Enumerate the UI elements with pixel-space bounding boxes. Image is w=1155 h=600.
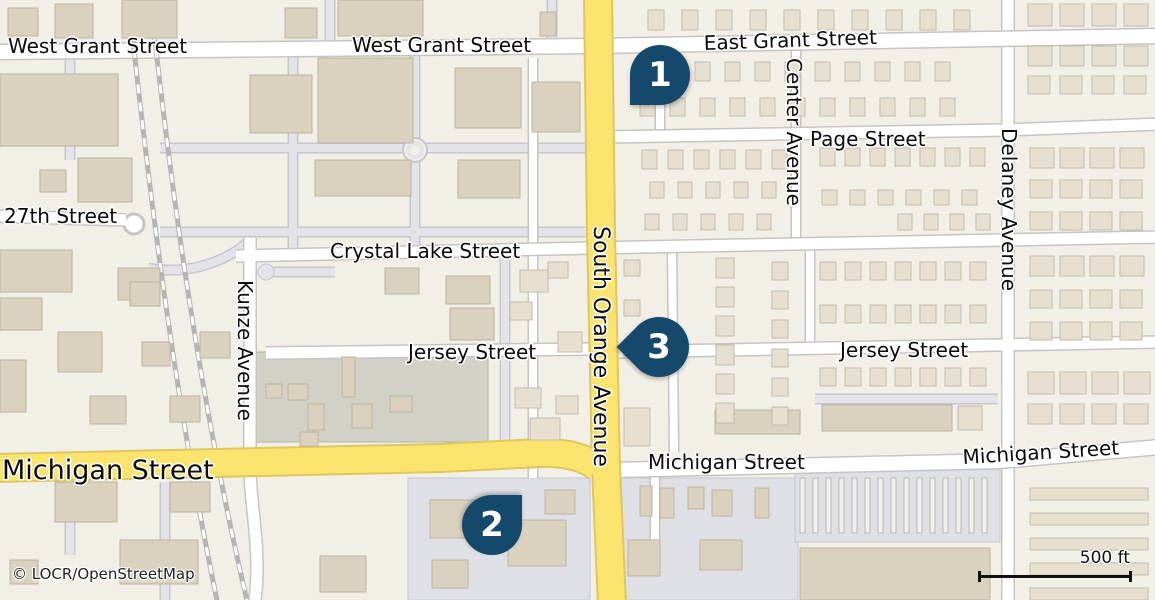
- map-marker-2[interactable]: 2: [462, 495, 522, 555]
- building: [1090, 322, 1112, 340]
- map-viewport[interactable]: West Grant Street West Grant Street East…: [0, 0, 1155, 600]
- street-label-delaney-avenue: Delaney Avenue: [997, 128, 1021, 291]
- building: [688, 487, 704, 509]
- building: [772, 349, 788, 367]
- building: [1092, 4, 1116, 26]
- building: [845, 305, 861, 323]
- building: [668, 150, 683, 169]
- building: [920, 368, 936, 386]
- street-label-west-grant-left: West Grant Street: [8, 34, 187, 58]
- map-graphics: West Grant Street West Grant Street East…: [0, 0, 1155, 600]
- building: [450, 308, 494, 340]
- building: [1092, 76, 1114, 94]
- building: [1060, 290, 1082, 308]
- building: [850, 98, 865, 116]
- street-label-jersey-west: Jersey Street: [406, 340, 536, 364]
- building: [920, 10, 936, 30]
- building: [895, 305, 911, 323]
- street-label-michigan-west: Michigan Street: [2, 455, 214, 486]
- map-marker-3[interactable]: 3: [629, 317, 689, 377]
- building: [1030, 290, 1052, 308]
- building: [820, 368, 836, 386]
- building: [1060, 404, 1084, 424]
- building: [760, 98, 775, 116]
- building: [970, 262, 986, 280]
- building: [318, 58, 413, 143]
- building: [678, 182, 692, 198]
- building: [1092, 372, 1118, 394]
- building: [820, 98, 835, 116]
- building: [945, 148, 960, 166]
- building: [545, 490, 575, 514]
- building: [1090, 290, 1112, 308]
- building: [970, 148, 985, 166]
- building: [530, 418, 560, 440]
- building: [716, 258, 734, 278]
- building: [1124, 76, 1146, 94]
- building: [895, 262, 911, 280]
- building: [1090, 256, 1114, 276]
- building: [757, 214, 771, 230]
- building: [1030, 513, 1148, 525]
- building: [820, 262, 836, 280]
- scale-bar-label: 500 ft: [978, 548, 1132, 568]
- building: [950, 214, 964, 230]
- building: [845, 262, 861, 280]
- building: [1090, 148, 1114, 168]
- building: [1092, 46, 1116, 66]
- building: [762, 182, 776, 198]
- building: [510, 302, 532, 320]
- building: [870, 262, 886, 280]
- building: [642, 150, 657, 169]
- building: [1060, 322, 1082, 340]
- building: [772, 407, 788, 425]
- building: [716, 10, 732, 30]
- building: [1028, 4, 1052, 26]
- building: [870, 368, 886, 386]
- building: [1120, 212, 1142, 230]
- storage-strip: [865, 478, 870, 533]
- building: [308, 404, 324, 430]
- building: [940, 98, 955, 116]
- building: [0, 360, 26, 412]
- building: [716, 316, 734, 336]
- building: [682, 10, 698, 30]
- building: [1120, 290, 1142, 308]
- building: [716, 374, 734, 394]
- storage-strip: [943, 478, 948, 533]
- building: [1030, 212, 1052, 230]
- building: [520, 270, 548, 292]
- building: [288, 384, 308, 400]
- building: [1120, 180, 1142, 198]
- building: [895, 368, 911, 386]
- building: [446, 276, 490, 304]
- building: [673, 214, 687, 230]
- building: [772, 291, 788, 309]
- building: [976, 214, 990, 230]
- cul-de-sac: [258, 264, 274, 280]
- building: [0, 298, 42, 330]
- building: [650, 182, 664, 198]
- building: [945, 305, 961, 323]
- building: [905, 62, 920, 81]
- building: [1060, 212, 1082, 230]
- building: [300, 432, 318, 446]
- building: [730, 98, 745, 116]
- building: [1060, 76, 1082, 94]
- building: [886, 10, 902, 30]
- building: [1030, 488, 1148, 500]
- building: [822, 405, 952, 431]
- street-label-michigan-center: Michigan Street: [648, 450, 805, 474]
- building: [1120, 322, 1142, 340]
- building: [880, 98, 895, 116]
- building: [870, 305, 886, 323]
- building: [78, 158, 132, 202]
- street-label-west-grant-center: West Grant Street: [352, 33, 531, 57]
- storage-strip: [813, 478, 818, 533]
- building: [342, 357, 355, 397]
- building: [1030, 588, 1148, 600]
- building: [556, 396, 578, 414]
- marker-number: 2: [462, 495, 522, 555]
- building: [755, 62, 770, 81]
- building: [920, 262, 936, 280]
- building: [660, 488, 674, 518]
- building: [1028, 46, 1052, 66]
- building: [695, 62, 710, 81]
- building: [90, 396, 126, 424]
- building: [716, 403, 734, 423]
- building: [729, 214, 743, 230]
- building: [878, 190, 893, 205]
- scale-bar: 500 ft: [978, 548, 1132, 582]
- map-marker-1[interactable]: 1: [630, 45, 690, 105]
- building: [390, 396, 412, 412]
- building: [924, 214, 938, 230]
- building: [712, 490, 732, 516]
- building: [822, 190, 837, 205]
- marker-number: 3: [629, 317, 689, 377]
- building: [850, 190, 865, 205]
- building: [746, 150, 761, 169]
- building: [1030, 322, 1052, 340]
- building: [701, 214, 715, 230]
- building: [352, 404, 372, 428]
- building: [845, 62, 860, 81]
- street-label-jersey-east: Jersey Street: [838, 338, 968, 362]
- building: [40, 170, 66, 192]
- storage-strip: [956, 478, 961, 533]
- building: [1124, 404, 1148, 424]
- building: [970, 368, 986, 386]
- building: [1030, 180, 1052, 198]
- building: [815, 62, 830, 81]
- building: [645, 214, 659, 230]
- building: [945, 368, 961, 386]
- building: [55, 482, 117, 522]
- building: [716, 345, 734, 365]
- building: [55, 4, 93, 38]
- building: [170, 482, 210, 512]
- building: [200, 332, 230, 358]
- building: [540, 12, 556, 36]
- building: [1090, 212, 1112, 230]
- building: [1120, 148, 1144, 168]
- building: [716, 287, 734, 307]
- building: [706, 182, 720, 198]
- building: [1028, 404, 1052, 424]
- building: [845, 368, 861, 386]
- storage-strip: [904, 478, 909, 533]
- building: [1120, 256, 1144, 276]
- building: [1060, 4, 1084, 26]
- building: [0, 250, 72, 292]
- cul-de-sac: [124, 214, 144, 234]
- storage-strip: [930, 478, 935, 533]
- building: [1060, 46, 1084, 66]
- building: [725, 62, 740, 81]
- building: [266, 384, 282, 398]
- building: [772, 262, 788, 280]
- building: [750, 10, 766, 30]
- building: [628, 540, 660, 576]
- building: [734, 182, 748, 198]
- building: [624, 408, 650, 446]
- building: [906, 190, 921, 205]
- building: [515, 388, 541, 408]
- marker-number: 1: [630, 45, 690, 105]
- building: [1028, 372, 1054, 394]
- building: [1060, 256, 1084, 276]
- street-label-kunze-avenue: Kunze Avenue: [233, 280, 257, 421]
- buildings-layer: [800, 478, 987, 533]
- building: [1124, 4, 1148, 26]
- building: [532, 82, 580, 132]
- building: [1030, 148, 1054, 168]
- storage-strip: [826, 478, 831, 533]
- building: [432, 560, 468, 588]
- storage-strip: [800, 478, 805, 533]
- building: [700, 98, 715, 116]
- building: [700, 540, 742, 570]
- street-label-27th: 27th Street: [4, 204, 117, 228]
- scale-bar-line: [978, 571, 1132, 582]
- building: [558, 332, 582, 352]
- building: [640, 486, 652, 516]
- building: [320, 556, 366, 592]
- building: [1124, 46, 1148, 66]
- building: [1124, 372, 1150, 394]
- building: [772, 320, 788, 338]
- building: [458, 160, 520, 198]
- building: [0, 74, 118, 146]
- building: [130, 282, 160, 306]
- building: [820, 305, 836, 323]
- building: [1060, 148, 1084, 168]
- storage-strip: [891, 478, 896, 533]
- building: [934, 190, 949, 205]
- building: [1060, 372, 1086, 394]
- building: [624, 260, 640, 276]
- building: [624, 300, 640, 316]
- building: [910, 98, 925, 116]
- building: [800, 548, 990, 600]
- building: [385, 268, 419, 294]
- storage-strip: [839, 478, 844, 533]
- storage-strip: [982, 478, 987, 533]
- building: [954, 10, 970, 30]
- street-label-page: Page Street: [810, 127, 926, 151]
- building: [338, 0, 423, 36]
- building: [875, 62, 890, 81]
- building: [8, 8, 38, 36]
- building: [58, 332, 102, 372]
- building: [920, 305, 936, 323]
- building: [1028, 76, 1050, 94]
- building: [455, 68, 521, 128]
- storage-strip: [852, 478, 857, 533]
- building: [945, 262, 961, 280]
- building: [1030, 256, 1054, 276]
- building: [285, 8, 317, 38]
- map-attribution: © LOCR/OpenStreetMap: [12, 565, 195, 583]
- building: [548, 262, 568, 278]
- building: [755, 488, 769, 518]
- building: [772, 378, 788, 396]
- street-label-center-avenue: Center Avenue: [782, 58, 806, 206]
- building: [170, 396, 200, 422]
- building: [720, 150, 735, 169]
- building: [935, 62, 950, 81]
- building: [970, 305, 986, 323]
- storage-strip: [878, 478, 883, 533]
- storage-strip: [917, 478, 922, 533]
- street-label-crystal-lake: Crystal Lake Street: [330, 239, 520, 263]
- storage-strip: [969, 478, 974, 533]
- building: [898, 214, 912, 230]
- street-label-south-orange: South Orange Avenue: [588, 226, 613, 467]
- building: [1060, 180, 1082, 198]
- building: [694, 150, 709, 169]
- building: [122, 0, 177, 38]
- building: [648, 10, 664, 30]
- building: [142, 342, 170, 366]
- building: [250, 75, 312, 133]
- building: [958, 406, 982, 430]
- building: [962, 190, 977, 205]
- roundabout-inner: [408, 143, 422, 157]
- building: [1090, 180, 1112, 198]
- building: [315, 160, 411, 196]
- building: [1092, 404, 1116, 424]
